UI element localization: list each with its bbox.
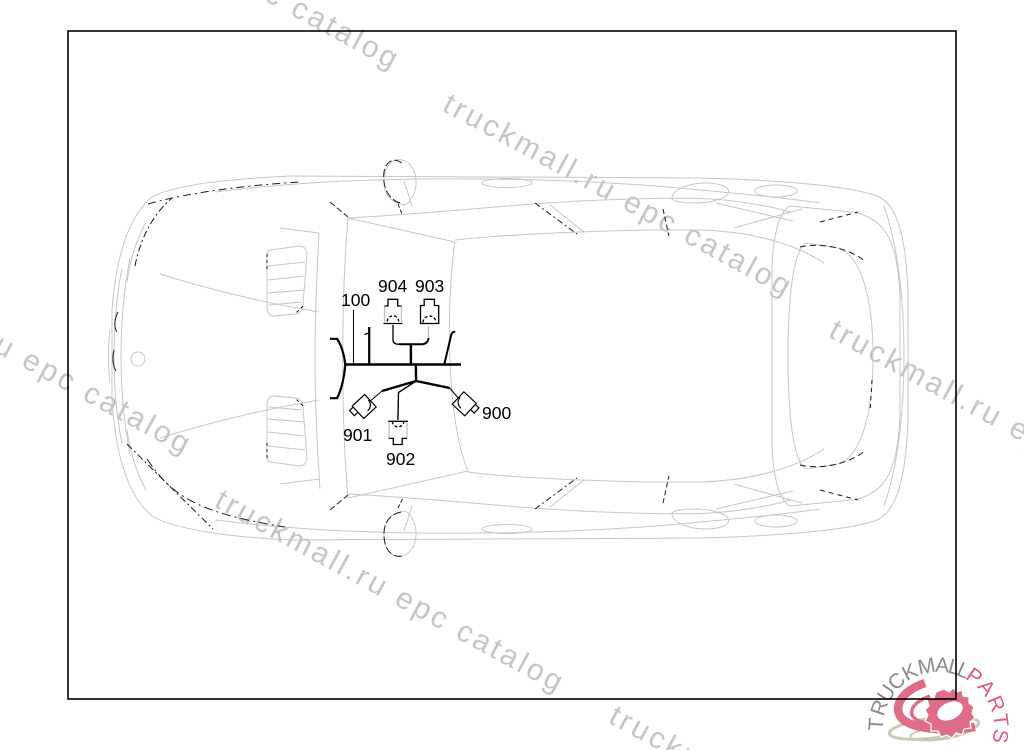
svg-text:truckmall.ru epc catalog: truckmall.ru epc catalog bbox=[0, 245, 198, 462]
svg-text:901: 901 bbox=[343, 425, 372, 445]
svg-text:903: 903 bbox=[415, 276, 444, 296]
svg-text:S: S bbox=[988, 728, 1013, 745]
svg-text:904: 904 bbox=[378, 276, 407, 296]
svg-text:truckmall.ru epc catalog: truckmall.ru epc catalog bbox=[438, 87, 800, 304]
svg-text:100: 100 bbox=[341, 290, 370, 310]
svg-text:T: T bbox=[865, 717, 889, 731]
svg-text:902: 902 bbox=[386, 449, 415, 469]
svg-text:T: T bbox=[988, 712, 1012, 728]
svg-text:truckmall.ru epc catalog: truckmall.ru epc catalog bbox=[824, 313, 1024, 530]
svg-text:truckmall.ru epc catalog: truckmall.ru epc catalog bbox=[45, 0, 407, 77]
svg-text:truckmall.ru epc catalog: truckmall.ru epc catalog bbox=[210, 483, 572, 700]
svg-text:900: 900 bbox=[482, 403, 511, 423]
